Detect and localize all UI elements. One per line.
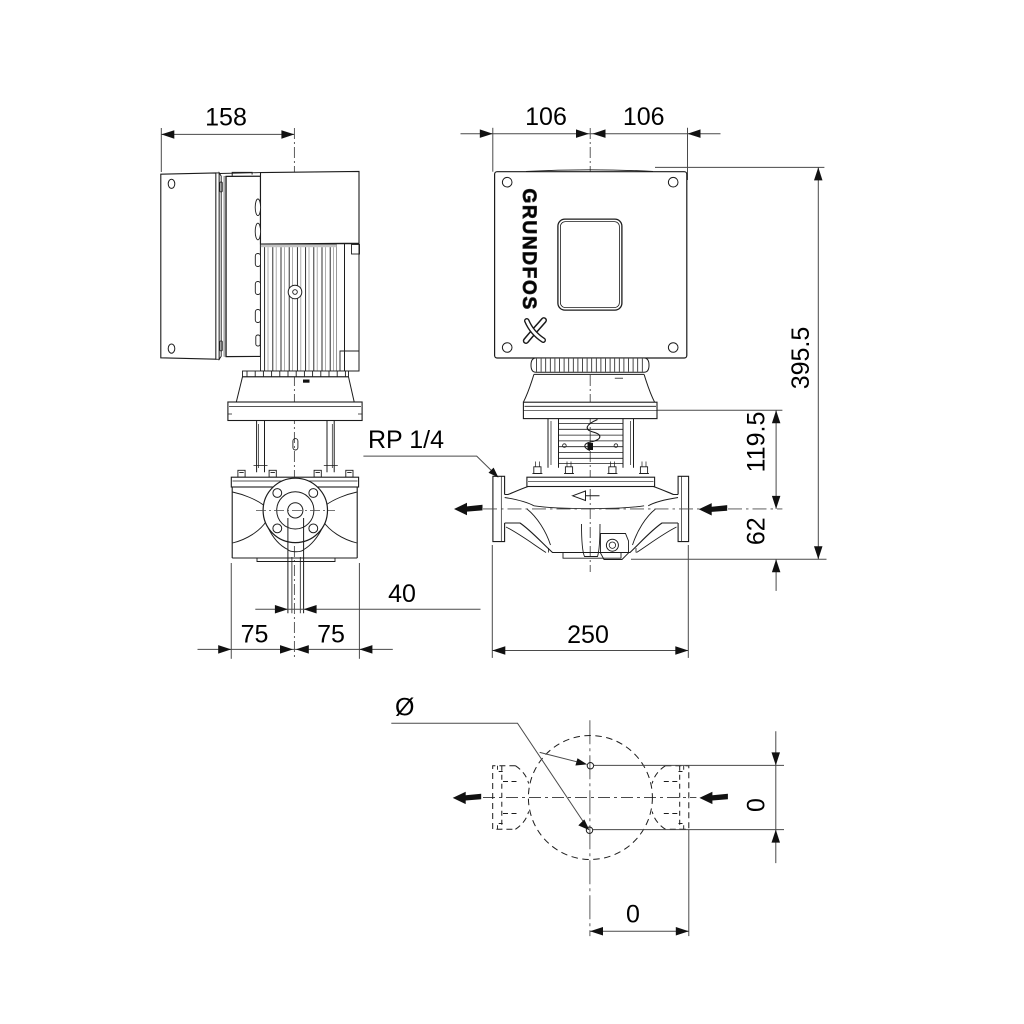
- svg-text:106: 106: [623, 103, 665, 131]
- svg-text:Ø: Ø: [395, 693, 414, 721]
- svg-text:GRUNDFOS: GRUNDFOS: [518, 189, 539, 311]
- svg-text:62: 62: [743, 517, 771, 545]
- svg-text:RP 1/4: RP 1/4: [368, 426, 444, 454]
- svg-text:395.5: 395.5: [787, 327, 815, 390]
- svg-text:75: 75: [317, 621, 345, 649]
- svg-text:250: 250: [567, 621, 609, 649]
- svg-text:119.5: 119.5: [743, 412, 771, 473]
- svg-text:0: 0: [626, 901, 640, 929]
- svg-text:40: 40: [388, 580, 416, 608]
- svg-text:75: 75: [241, 621, 269, 649]
- svg-text:158: 158: [205, 104, 247, 132]
- svg-text:0: 0: [743, 798, 771, 812]
- svg-text:106: 106: [525, 103, 567, 131]
